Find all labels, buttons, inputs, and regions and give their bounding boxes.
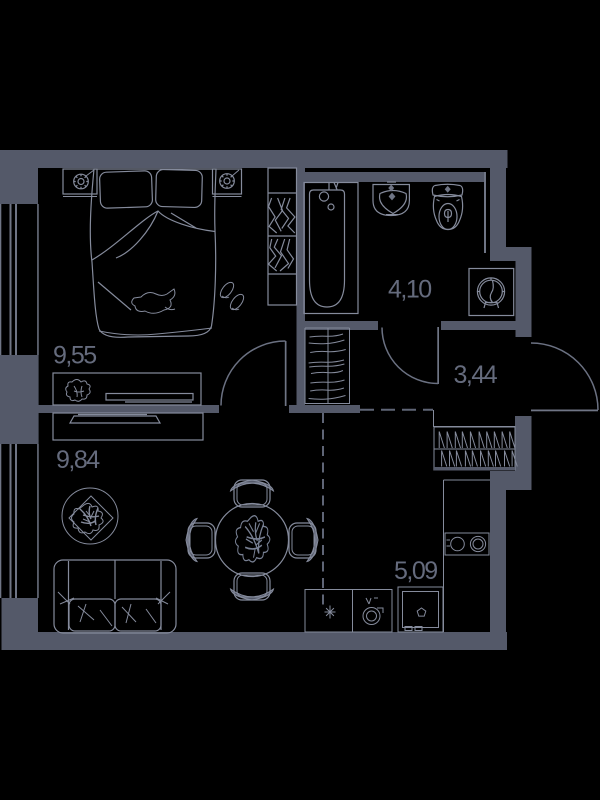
- svg-text:5,09: 5,09: [394, 557, 437, 585]
- svg-text:3,44: 3,44: [454, 361, 498, 389]
- svg-text:4,10: 4,10: [388, 276, 431, 304]
- svg-text:9,84: 9,84: [56, 446, 100, 474]
- svg-text:9,55: 9,55: [53, 342, 96, 370]
